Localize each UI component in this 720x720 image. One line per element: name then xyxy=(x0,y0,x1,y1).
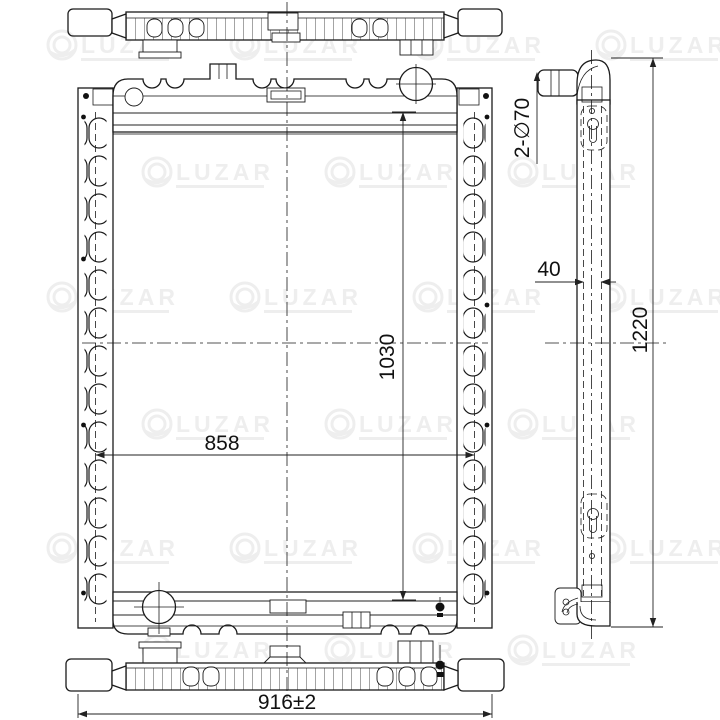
front-right-side-panel xyxy=(457,88,492,628)
dim-overall-width: 916±2 xyxy=(78,691,492,718)
rivet-dot xyxy=(483,93,489,99)
brand-watermark: LUZAR xyxy=(597,31,720,61)
dim-core-width-label: 858 xyxy=(204,432,239,455)
watermark-brand-text: LUZAR xyxy=(359,411,457,437)
watermark-brand-text: LUZAR xyxy=(542,637,640,663)
brand-watermark: LUZAR xyxy=(597,534,720,564)
watermark-brand-text: LUZAR xyxy=(359,159,457,185)
rivet-dot xyxy=(83,93,89,99)
front-header-tank xyxy=(113,64,457,134)
brand-watermark: LUZAR xyxy=(597,283,720,313)
dim-core-height-label: 1030 xyxy=(376,334,399,381)
bottom-view-right-bracket xyxy=(458,659,504,691)
watermark-brand-text: LUZAR xyxy=(176,159,274,185)
brand-watermark: LUZAR xyxy=(509,410,640,440)
watermark-brand-text: LUZAR xyxy=(176,637,274,663)
top-view-tank-bar xyxy=(112,12,458,42)
bottom-view-bar xyxy=(112,663,458,690)
dim-pipes: 2-∅70 xyxy=(511,72,540,164)
watermark-brand-text: LUZAR xyxy=(630,535,720,561)
header-boss xyxy=(125,88,143,106)
brand-watermark: LUZAR xyxy=(509,158,640,188)
radiator-technical-drawing: LUZARLUZARLUZARLUZARLUZARLUZARLUZARLUZAR… xyxy=(0,0,720,720)
front-left-side-panel xyxy=(78,88,113,628)
dim-overall-width-label: 916±2 xyxy=(258,691,316,714)
side-view-body xyxy=(577,87,610,602)
dim-pipes-label: 2-∅70 xyxy=(511,98,534,158)
brand-watermark: LUZAR xyxy=(231,283,362,313)
brand-watermark: LUZAR xyxy=(143,158,274,188)
watermark-brand-text: LUZAR xyxy=(264,535,362,561)
side-view-inlet-pipe xyxy=(538,70,578,96)
brand-watermark: LUZAR xyxy=(326,158,457,188)
bottom-view-left-bracket xyxy=(66,659,112,691)
watermark-brand-text: LUZAR xyxy=(630,32,720,58)
watermark-brand-text: LUZAR xyxy=(264,284,362,310)
dim-core-depth-label: 40 xyxy=(537,258,560,281)
watermark-brand-text: LUZAR xyxy=(630,284,720,310)
brand-watermark: LUZAR xyxy=(231,534,362,564)
front-bottom-tank xyxy=(113,582,457,636)
brand-watermark: LUZAR xyxy=(509,636,640,666)
dim-overall-height-label: 1220 xyxy=(629,307,652,354)
brand-watermark: LUZAR xyxy=(326,410,457,440)
drawing-canvas: LUZARLUZARLUZARLUZARLUZARLUZARLUZARLUZAR… xyxy=(0,0,720,720)
